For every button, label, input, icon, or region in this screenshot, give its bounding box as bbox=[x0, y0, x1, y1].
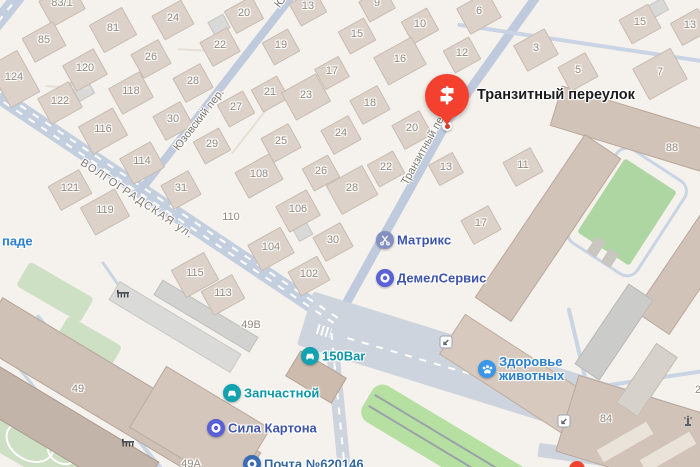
house-number: 28 bbox=[187, 75, 199, 87]
ring-icon[interactable] bbox=[243, 455, 261, 467]
house-number: 124 bbox=[5, 71, 23, 83]
house-number: 15 bbox=[351, 28, 363, 40]
car-icon[interactable] bbox=[301, 347, 319, 365]
house-number: 116 bbox=[94, 123, 112, 135]
house-number: 113 bbox=[214, 287, 232, 299]
house-number: 9 bbox=[374, 0, 380, 9]
house-number: 110 bbox=[222, 211, 240, 223]
house-number: 27 bbox=[230, 101, 242, 113]
barrier-icon bbox=[122, 439, 135, 448]
house-number: 13 bbox=[302, 0, 314, 12]
house-number: 30 bbox=[167, 113, 179, 125]
house-number: 114 bbox=[133, 155, 151, 167]
map-pin[interactable] bbox=[425, 74, 469, 118]
house-number: 6 bbox=[476, 5, 482, 17]
house-number: 26 bbox=[315, 165, 327, 177]
house-number: 21 bbox=[264, 86, 276, 98]
selected-place-title: Транзитный переулок bbox=[477, 87, 635, 103]
house-number: 83/1 bbox=[51, 0, 72, 9]
ring-icon[interactable] bbox=[207, 419, 225, 437]
poi-label[interactable]: паде bbox=[2, 234, 33, 249]
house-number: 2 bbox=[695, 384, 700, 396]
map-canvas[interactable]: 83/1858124201391061519222612163515137124… bbox=[0, 0, 700, 467]
house-number: 115 bbox=[186, 267, 204, 279]
house-number: 29 bbox=[206, 138, 218, 150]
house-number: 81 bbox=[107, 22, 119, 34]
poi-label[interactable]: Почта №620146 bbox=[264, 457, 364, 467]
house-number: 20 bbox=[406, 122, 418, 134]
poi-label[interactable]: Матрикс bbox=[397, 233, 451, 248]
house-number: 11 bbox=[517, 159, 528, 171]
poi-label[interactable]: Сила Картона bbox=[228, 421, 317, 436]
house-number: 18 bbox=[364, 97, 376, 109]
entrance-icon bbox=[440, 336, 453, 349]
house-number: 22 bbox=[380, 161, 392, 173]
house-number: 121 bbox=[61, 182, 79, 194]
house-number: 102 bbox=[300, 268, 318, 280]
house-number: 25 bbox=[275, 135, 287, 147]
house-number: 84 bbox=[600, 413, 612, 425]
house-number: 106 bbox=[289, 203, 307, 215]
house-number: 88 bbox=[666, 142, 678, 154]
house-number: 17 bbox=[475, 217, 487, 229]
house-number: 108 bbox=[250, 168, 268, 180]
house-number: 10 bbox=[414, 18, 426, 30]
paw-icon[interactable] bbox=[478, 360, 496, 378]
house-number: 120 bbox=[76, 62, 94, 74]
house-number: 30 bbox=[327, 234, 339, 246]
monument-icon bbox=[683, 415, 693, 427]
house-number: 5 bbox=[575, 64, 581, 76]
map-pin-tail bbox=[440, 116, 454, 125]
house-number: 12 bbox=[456, 47, 468, 59]
car-icon[interactable] bbox=[223, 384, 241, 402]
entrance-icon bbox=[558, 415, 571, 428]
poi-label[interactable]: Здоровье животных bbox=[499, 355, 563, 383]
house-number: 122 bbox=[51, 95, 69, 107]
house-number: 49В bbox=[241, 319, 261, 331]
house-number: 19 bbox=[275, 39, 287, 51]
ring-icon[interactable] bbox=[376, 269, 394, 287]
house-number: 49 bbox=[72, 383, 84, 395]
house-number: 104 bbox=[262, 241, 280, 253]
house-number: 28 bbox=[346, 182, 358, 194]
scissors-icon[interactable] bbox=[376, 231, 394, 249]
house-number: 17 bbox=[326, 65, 338, 77]
barrier-icon bbox=[117, 290, 130, 299]
house-number: 118 bbox=[122, 85, 140, 97]
house-number: 24 bbox=[335, 127, 347, 139]
poi-label[interactable]: Запчастной bbox=[244, 386, 319, 401]
house-number: 7 bbox=[657, 66, 663, 78]
house-number: 16 bbox=[394, 53, 406, 65]
house-number: 119 bbox=[96, 204, 114, 216]
house-number: 23 bbox=[300, 89, 312, 101]
house-number: 13 bbox=[440, 161, 452, 173]
signpost-icon bbox=[434, 83, 460, 109]
house-number: 20 bbox=[238, 7, 250, 19]
poi-label[interactable]: ДемелСервис bbox=[397, 271, 486, 286]
house-number: 49А bbox=[181, 458, 201, 467]
house-number: 13 bbox=[684, 19, 696, 31]
house-number: 31 bbox=[175, 182, 187, 194]
house-number: 85 bbox=[38, 34, 50, 46]
house-number: 15 bbox=[634, 16, 646, 28]
house-number: 24 bbox=[167, 12, 179, 24]
poi-label[interactable]: 150Bar bbox=[322, 349, 365, 364]
house-number: 3 bbox=[533, 42, 539, 54]
house-number: 26 bbox=[145, 51, 157, 63]
house-number: 22 bbox=[214, 39, 226, 51]
road bbox=[0, 0, 30, 39]
